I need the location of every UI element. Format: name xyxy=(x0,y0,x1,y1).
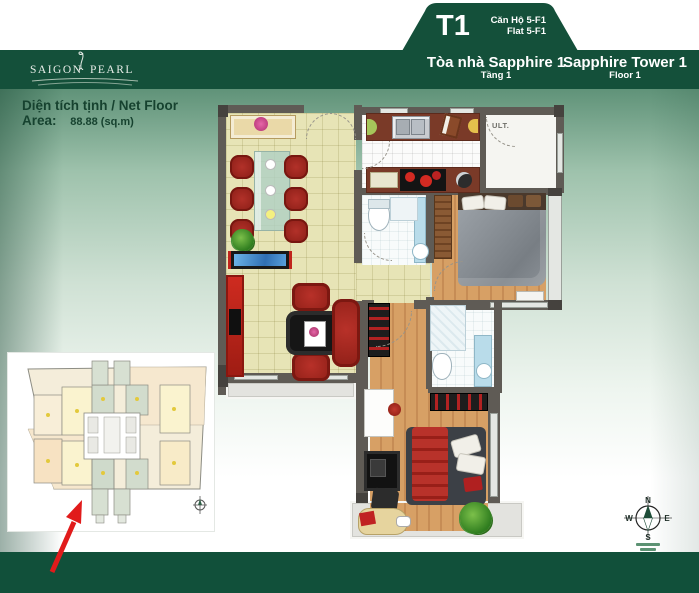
cushion xyxy=(526,195,541,207)
television xyxy=(370,459,386,477)
balcony-living xyxy=(226,381,356,399)
bathroom-1-sink xyxy=(412,243,429,260)
wall xyxy=(480,111,486,189)
balcony-red-stool xyxy=(359,511,376,526)
armchair xyxy=(292,353,330,381)
toilet xyxy=(432,353,452,380)
window-band xyxy=(548,192,562,302)
brand-right: PEARL xyxy=(90,64,134,76)
floor-plan: ULT. xyxy=(218,103,564,552)
plate xyxy=(265,159,276,170)
compass-caption xyxy=(640,548,656,551)
compass-caption xyxy=(636,543,660,546)
compass-south-label: S xyxy=(645,533,651,542)
compass-rose: N E S W xyxy=(622,494,674,556)
hallway xyxy=(356,263,430,303)
compass-west-label: W xyxy=(625,514,633,523)
desk-chair xyxy=(388,403,401,416)
location-arrow xyxy=(36,478,106,578)
wall-corner xyxy=(548,300,562,310)
counter-tray xyxy=(370,172,398,188)
unit-name-vi: Căn Hộ 5-F1 xyxy=(468,15,546,26)
wall xyxy=(354,170,362,263)
wall-corner xyxy=(548,188,562,196)
brand-left: SAIGON xyxy=(30,64,82,76)
bedroom-1-bench xyxy=(516,291,544,301)
kitchen-bowl xyxy=(456,172,472,188)
dining-chair xyxy=(284,155,308,179)
shower-tray xyxy=(390,197,418,221)
floor-label-vi: Tầng 1 xyxy=(418,70,574,81)
burner xyxy=(405,172,415,182)
floor-label-en: Floor 1 xyxy=(560,70,690,81)
burner xyxy=(432,171,441,180)
plant xyxy=(232,229,254,251)
window xyxy=(490,413,498,497)
dining-chair xyxy=(284,187,308,211)
laptop xyxy=(396,516,411,527)
sink-basin xyxy=(411,119,425,135)
armchair xyxy=(292,283,330,311)
plate xyxy=(265,209,276,220)
bed-blanket-red xyxy=(412,427,448,501)
sink-basin xyxy=(396,119,410,135)
cushion xyxy=(508,195,523,207)
pillow xyxy=(483,195,506,211)
wall-corner xyxy=(218,105,228,117)
net-floor-area-value: 88.88 (sq.m) xyxy=(22,116,182,128)
dining-chair xyxy=(284,219,308,243)
plate xyxy=(265,185,276,196)
wall-corner xyxy=(554,105,564,117)
compass-north-label: N xyxy=(645,496,651,505)
top-strip xyxy=(0,0,699,50)
shower xyxy=(430,305,466,351)
bed-blanket xyxy=(458,210,546,286)
toilet-tank xyxy=(368,199,390,209)
building-name-vi: Tòa nhà Sapphire 1 xyxy=(418,54,574,71)
wardrobe xyxy=(430,393,488,411)
burner xyxy=(420,175,432,187)
flower-vase xyxy=(254,117,268,131)
loveseat xyxy=(332,299,360,367)
wall xyxy=(494,301,502,393)
unit-name-en: Flat 5-F1 xyxy=(468,26,546,37)
wall-corner xyxy=(356,493,368,503)
bathroom-2-vanity xyxy=(474,335,492,387)
bathroom-2-sink xyxy=(476,363,492,379)
wall xyxy=(414,300,426,309)
flower-centerpiece xyxy=(309,327,319,337)
wall xyxy=(218,105,304,113)
compass-rose-icon: N E S W xyxy=(622,494,674,542)
compass-east-label: E xyxy=(664,514,670,523)
overview-compass-icon xyxy=(193,496,207,514)
wall xyxy=(218,105,226,395)
aquarium xyxy=(234,254,286,266)
wardrobe xyxy=(434,195,452,259)
television xyxy=(229,309,241,335)
dining-chair xyxy=(230,155,254,179)
window xyxy=(557,133,563,173)
cushion xyxy=(463,476,483,492)
dish xyxy=(468,119,478,133)
brand-logo: SAIGON PEARL xyxy=(30,52,160,88)
pillow xyxy=(461,195,485,212)
dining-chair xyxy=(230,187,254,211)
logo-waves-icon xyxy=(30,78,140,88)
plant xyxy=(460,502,492,534)
building-name-en: Sapphire Tower 1 xyxy=(560,54,690,71)
